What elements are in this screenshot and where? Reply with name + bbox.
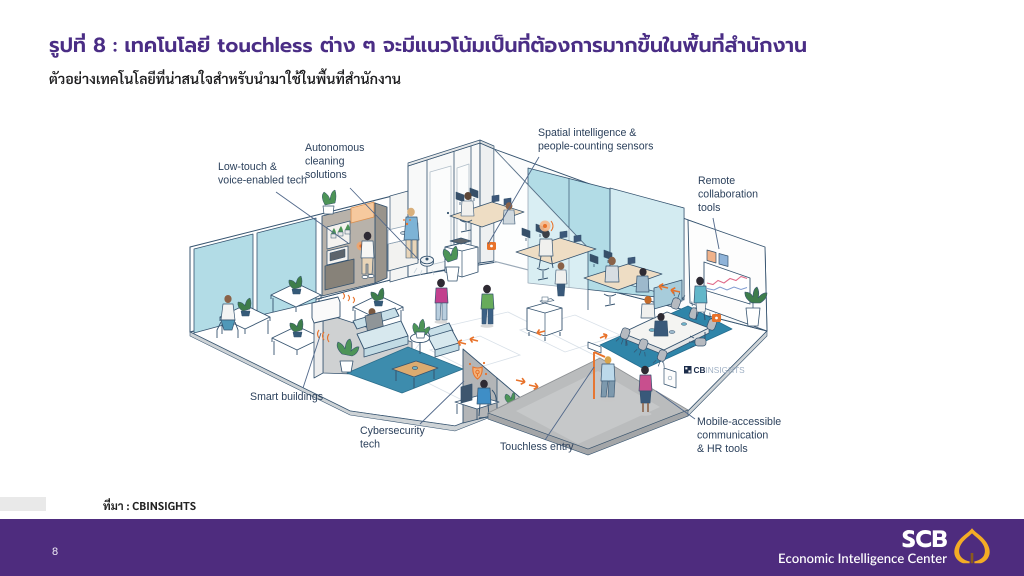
svg-text:communication: communication	[697, 430, 768, 442]
svg-text:Mobile-accessible: Mobile-accessible	[697, 416, 781, 428]
svg-text:Touchless entry: Touchless entry	[500, 441, 574, 453]
svg-text:solutions: solutions	[305, 169, 347, 181]
svg-text:& HR tools: & HR tools	[697, 443, 748, 455]
svg-text:cleaning: cleaning	[305, 156, 345, 168]
svg-text:collaboration: collaboration	[698, 189, 758, 201]
svg-text:Remote: Remote	[698, 175, 735, 187]
svg-text:Smart buildings: Smart buildings	[250, 391, 323, 403]
svg-text:tech: tech	[360, 439, 380, 451]
svg-text:Spatial intelligence &: Spatial intelligence &	[538, 127, 636, 139]
svg-text:voice-enabled tech: voice-enabled tech	[218, 175, 307, 187]
svg-text:CB: CB	[694, 365, 706, 375]
svg-text:INSIGHTS: INSIGHTS	[706, 365, 746, 375]
svg-text:Cybersecurity: Cybersecurity	[360, 425, 425, 437]
svg-text:people-counting sensors: people-counting sensors	[538, 141, 653, 153]
svg-text:8: 8	[52, 546, 58, 558]
svg-text:Autonomous: Autonomous	[305, 142, 364, 154]
svg-text:tools: tools	[698, 202, 720, 214]
svg-text:Low-touch &: Low-touch &	[218, 161, 277, 173]
